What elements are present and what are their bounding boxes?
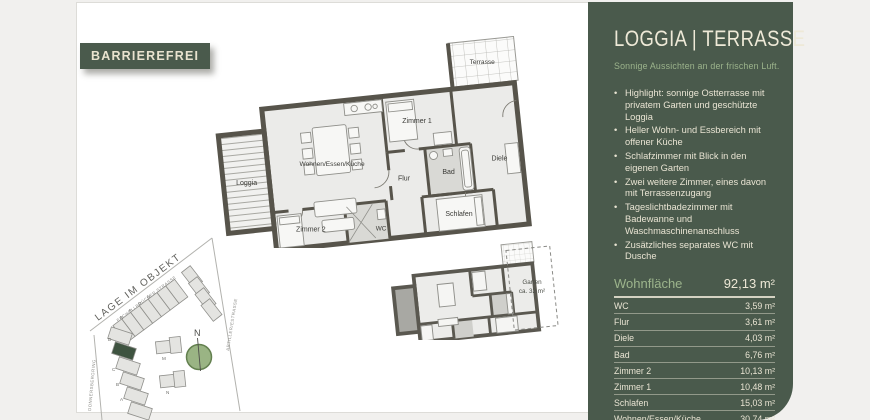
building-letter-e: E	[120, 315, 123, 320]
row-value: 10,13 m²	[740, 366, 775, 376]
feature-item: Zwei weitere Zimmer, eines davon mit Ter…	[614, 177, 779, 201]
label-flur: Flur	[398, 176, 411, 183]
table-row: Zimmer 210,13 m²	[614, 363, 775, 379]
row-label: Diele	[614, 333, 634, 343]
label-zimmer1: Zimmer 1	[402, 118, 432, 125]
info-panel: LOGGIA | TERRASSE Sonnige Aussichten an …	[588, 2, 793, 420]
building-letter-b: B	[116, 382, 119, 387]
floorplan-drawing: Loggia Wohnen/Essen/Küche Zimmer 1 Terra…	[200, 36, 552, 248]
building-letter-n: N	[166, 390, 169, 395]
feature-list: Highlight: sonnige Ostterrasse mit priva…	[614, 88, 779, 263]
row-label: Wohnen/Essen/Küche	[614, 414, 701, 420]
area-table-header-label: Wohnfläche	[614, 276, 682, 291]
street-label-left: DONNERSBERGRING	[87, 359, 97, 411]
row-value: 15,03 m²	[740, 398, 775, 408]
feature-item: Heller Wohn- und Essbereich mit offener …	[614, 125, 779, 149]
label-loggia: Loggia	[236, 180, 257, 187]
street-label-right: ARTILLERIESTRASSE	[225, 298, 238, 351]
feature-text: Zusätzliches separates WC mit Dusche	[625, 240, 753, 262]
row-label: Flur	[614, 317, 629, 327]
feature-item: Zusätzliches separates WC mit Dusche	[614, 240, 779, 264]
row-label: Bad	[614, 350, 630, 360]
label-wc: WC	[376, 225, 387, 232]
feature-text: Heller Wohn- und Essbereich mit offener …	[625, 125, 761, 147]
page-title: LOGGIA | TERRASSE	[614, 26, 753, 52]
compass: N	[187, 328, 212, 371]
row-value: 10,48 m²	[740, 382, 775, 392]
feature-item: Tageslichtbadezimmer mit Badewanne und W…	[614, 202, 779, 237]
feature-item: Highlight: sonnige Ostterrasse mit priva…	[614, 88, 779, 123]
page-subtitle: Sonnige Aussichten an der frischen Luft.	[614, 61, 779, 71]
compass-n-label: N	[194, 328, 201, 338]
label-zimmer2: Zimmer 2	[296, 227, 326, 234]
row-label: Schlafen	[614, 398, 648, 408]
feature-text: Highlight: sonnige Ostterrasse mit priva…	[625, 88, 765, 122]
feature-text: Zwei weitere Zimmer, eines davon mit Ter…	[625, 177, 766, 199]
feature-text: Schlafzimmer mit Blick in den eigenen Ga…	[625, 151, 746, 173]
row-label: Zimmer 2	[614, 366, 651, 376]
area-table-header: Wohnfläche 92,13 m²	[614, 276, 775, 298]
table-row: WC3,59 m²	[614, 298, 775, 314]
building-letter-c: C	[112, 367, 116, 372]
row-value: 3,59 m²	[745, 301, 775, 311]
building-letter-a: A	[120, 397, 124, 402]
table-row: Wohnen/Essen/Küche30,74 m²	[614, 411, 775, 420]
brochure-page: BARRIEREFREI	[0, 0, 870, 420]
row-value: 4,03 m²	[745, 333, 775, 343]
mini-floorplan: Garten ca. 32 m²	[384, 240, 559, 340]
building-letter-m: M	[162, 356, 166, 361]
buildings	[108, 266, 222, 420]
garten-label-line1: Garten	[522, 279, 542, 286]
barrierefrei-badge: BARRIEREFREI	[80, 43, 210, 69]
site-plan: LAGE IM OBJEKT ESCHOLLBRÜCKER STRASSE AR…	[72, 235, 257, 420]
row-label: Zimmer 1	[614, 382, 651, 392]
label-bad: Bad	[442, 169, 455, 176]
label-terrasse: Terrasse	[470, 59, 496, 66]
building-letter-f: F	[129, 308, 132, 313]
feature-item: Schlafzimmer mit Blick in den eigenen Ga…	[614, 151, 779, 175]
table-row: Schlafen15,03 m²	[614, 395, 775, 411]
label-schlafen: Schlafen	[445, 211, 472, 218]
table-row: Zimmer 110,48 m²	[614, 379, 775, 395]
building-letter-g: G	[138, 301, 142, 306]
row-value: 3,61 m²	[745, 317, 775, 327]
table-row: Flur3,61 m²	[614, 314, 775, 330]
garten-label-line2: ca. 32 m²	[519, 288, 545, 295]
table-row: Bad6,76 m²	[614, 347, 775, 363]
area-table: Wohnfläche 92,13 m² WC3,59 m² Flur3,61 m…	[614, 276, 775, 420]
row-value: 6,76 m²	[745, 350, 775, 360]
row-label: WC	[614, 301, 629, 311]
label-diele: Diele	[491, 156, 507, 163]
table-row: Diele4,03 m²	[614, 331, 775, 347]
building-letter-h: H	[147, 294, 150, 299]
feature-text: Tageslichtbadezimmer mit Badewanne und W…	[625, 202, 739, 236]
area-table-header-value: 92,13 m²	[724, 276, 775, 291]
row-value: 30,74 m²	[740, 414, 775, 420]
label-wohnen: Wohnen/Essen/Küche	[300, 161, 365, 168]
